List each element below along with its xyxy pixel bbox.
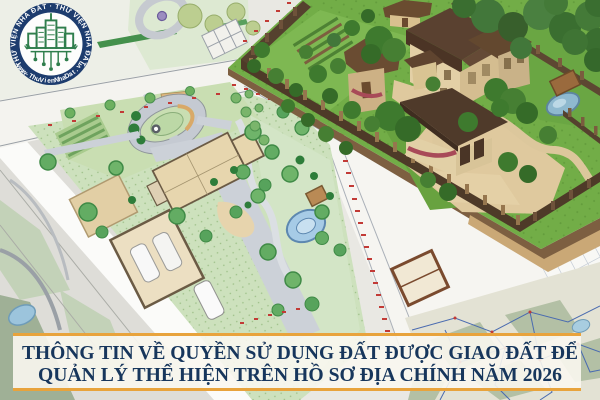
svg-text:QUẢN LÝ THỂ HIỆN TRÊN HỒ SƠ ĐỊ: QUẢN LÝ THỂ HIỆN TRÊN HỒ SƠ ĐỊA CHÍNH NĂ… xyxy=(38,362,562,386)
svg-text:THÔNG TIN VỀ QUYỀN SỬ DỤNG ĐẤT: THÔNG TIN VỀ QUYỀN SỬ DỤNG ĐẤT ĐƯỢC GIAO… xyxy=(22,340,578,364)
